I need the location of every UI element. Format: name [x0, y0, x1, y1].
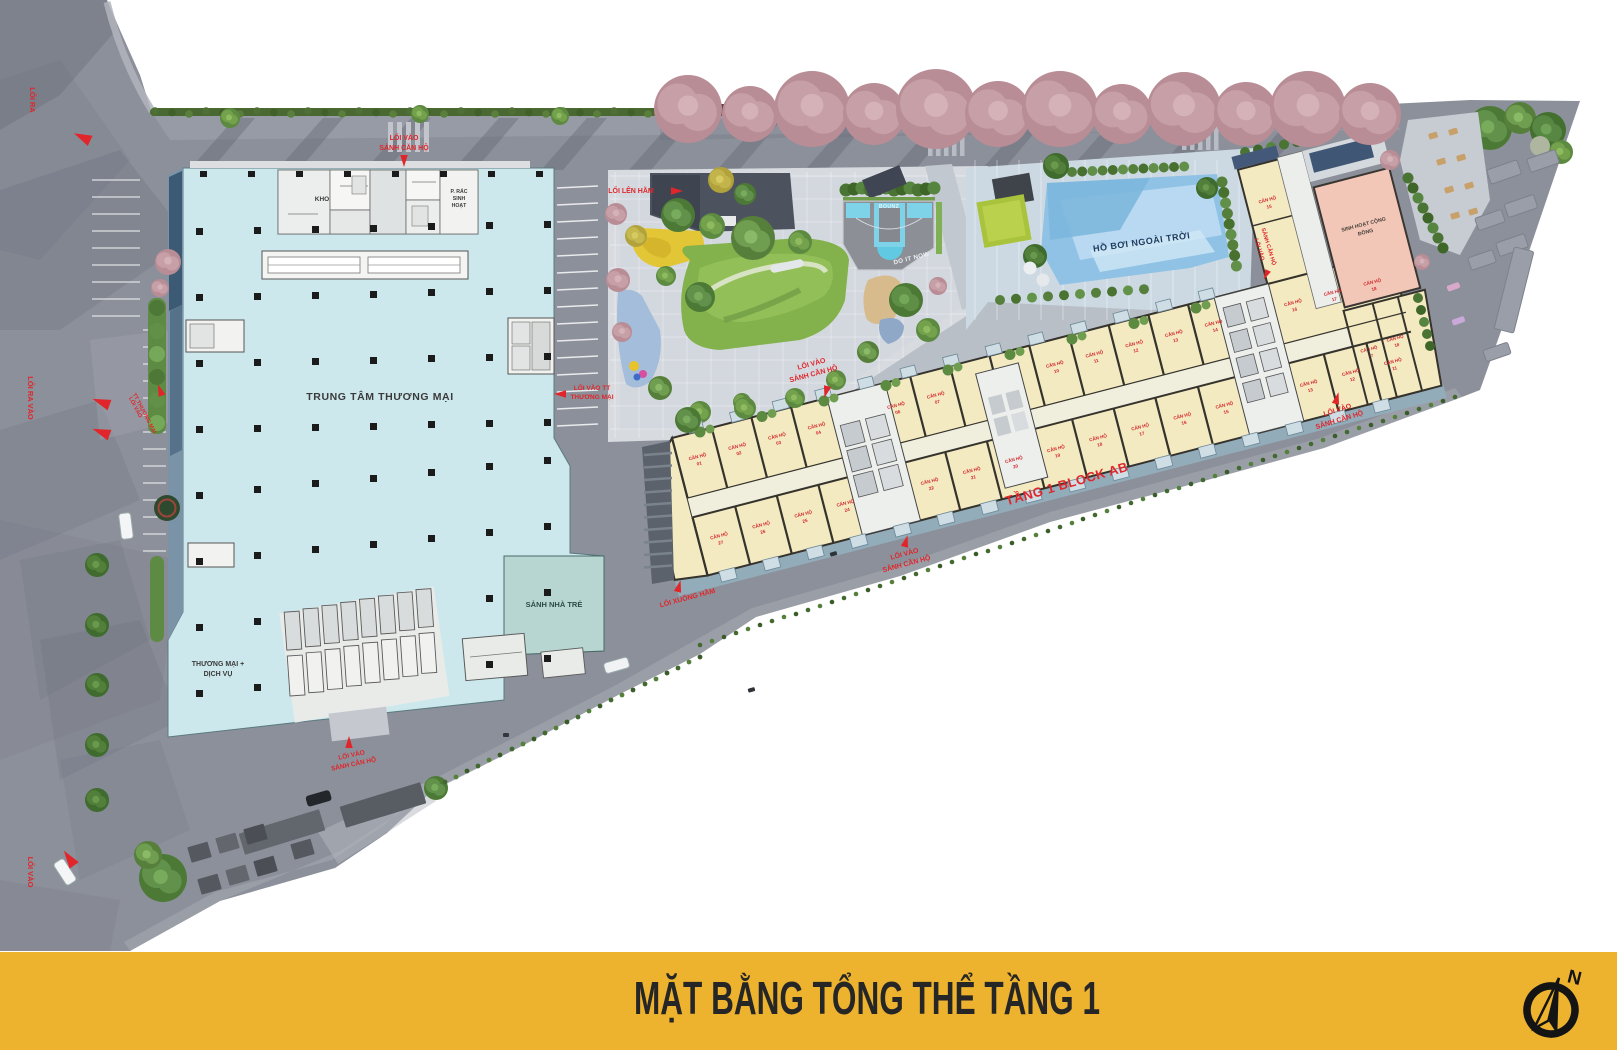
svg-text:TRUNG TÂM THƯƠNG MẠI: TRUNG TÂM THƯƠNG MẠI [306, 390, 454, 403]
svg-text:SẢNH CĂN HỘ: SẢNH CĂN HỘ [379, 143, 429, 152]
svg-text:MẶT BẰNG TỔNG THỂ TẦNG 1: MẶT BẰNG TỔNG THỂ TẦNG 1 [634, 972, 1100, 1024]
svg-text:DỊCH VỤ: DỊCH VỤ [204, 671, 233, 678]
svg-text:HOẠT: HOẠT [452, 203, 468, 209]
svg-text:LỐI RA: LỐI RA [28, 87, 38, 113]
svg-text:SINH: SINH [453, 196, 466, 202]
svg-text:P. RÁC: P. RÁC [451, 188, 468, 195]
svg-text:LỐI RA VÀO: LỐI RA VÀO [26, 376, 36, 420]
svg-text:LỐI VÀO: LỐI VÀO [26, 857, 36, 888]
svg-text:THƯƠNG MẠI: THƯƠNG MẠI [570, 394, 613, 401]
svg-text:BOUNZ: BOUNZ [879, 204, 899, 210]
svg-text:KHO: KHO [315, 196, 329, 203]
svg-text:SẢNH NHÀ TRẺ: SẢNH NHÀ TRẺ [526, 600, 583, 609]
svg-text:THƯƠNG MẠI +: THƯƠNG MẠI + [192, 661, 244, 668]
